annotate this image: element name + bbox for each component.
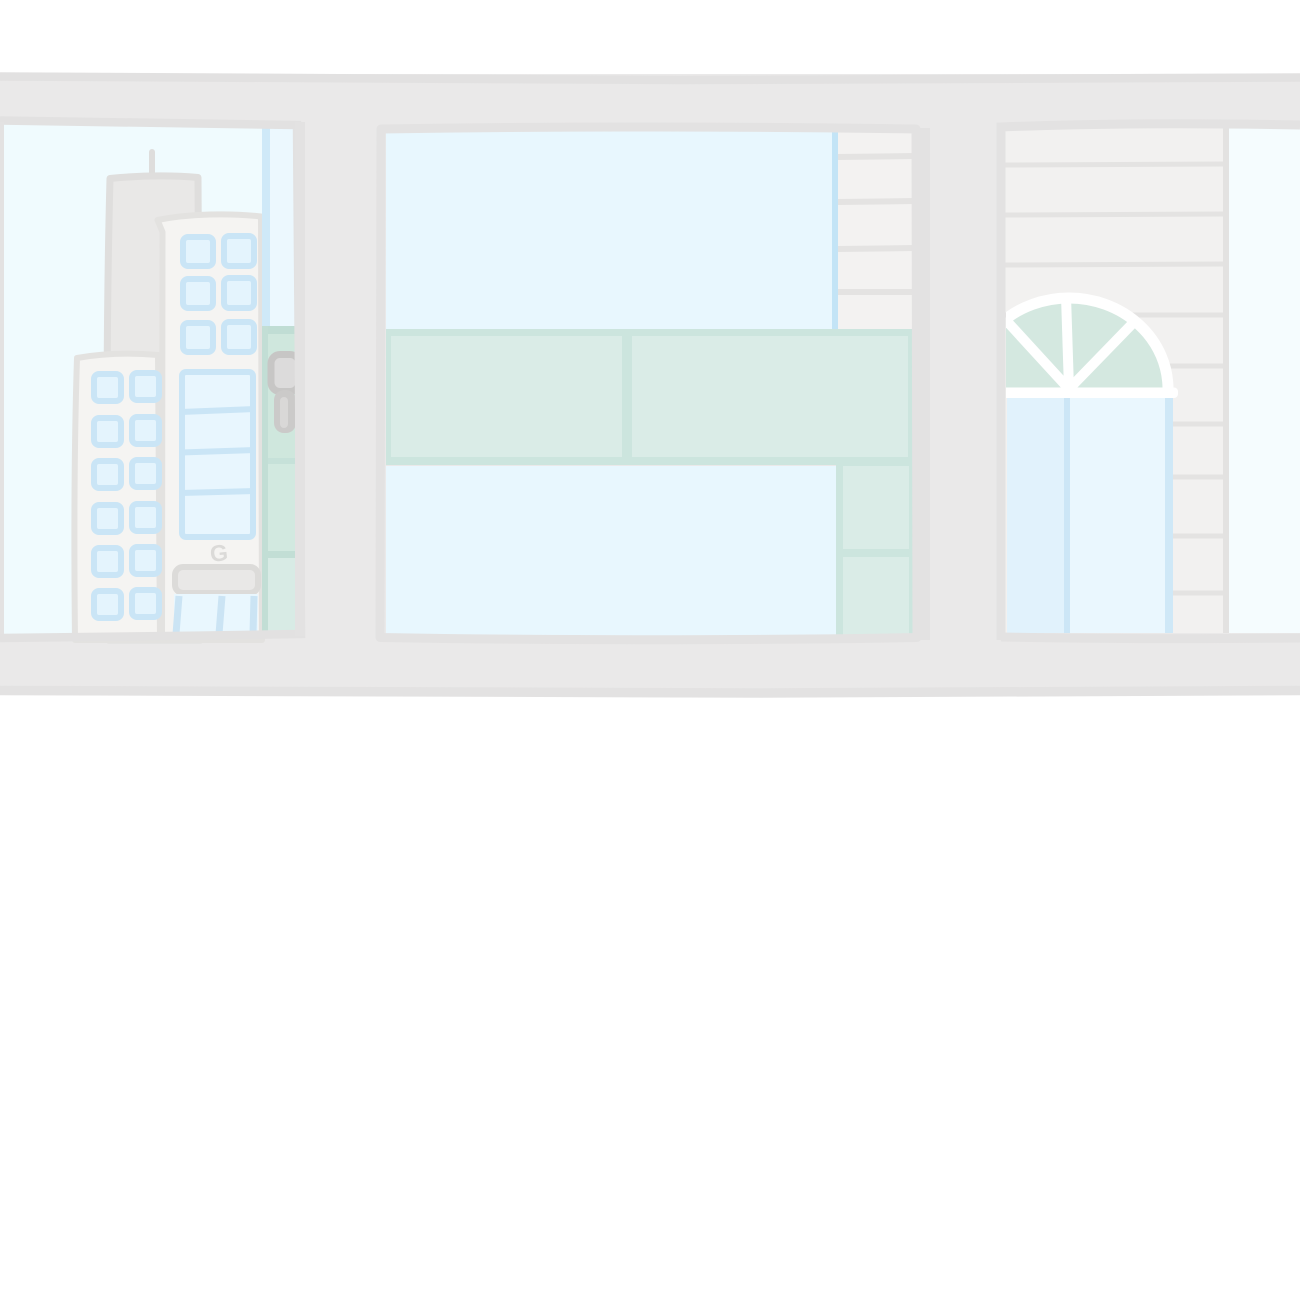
svg-text:G: G: [209, 539, 230, 567]
